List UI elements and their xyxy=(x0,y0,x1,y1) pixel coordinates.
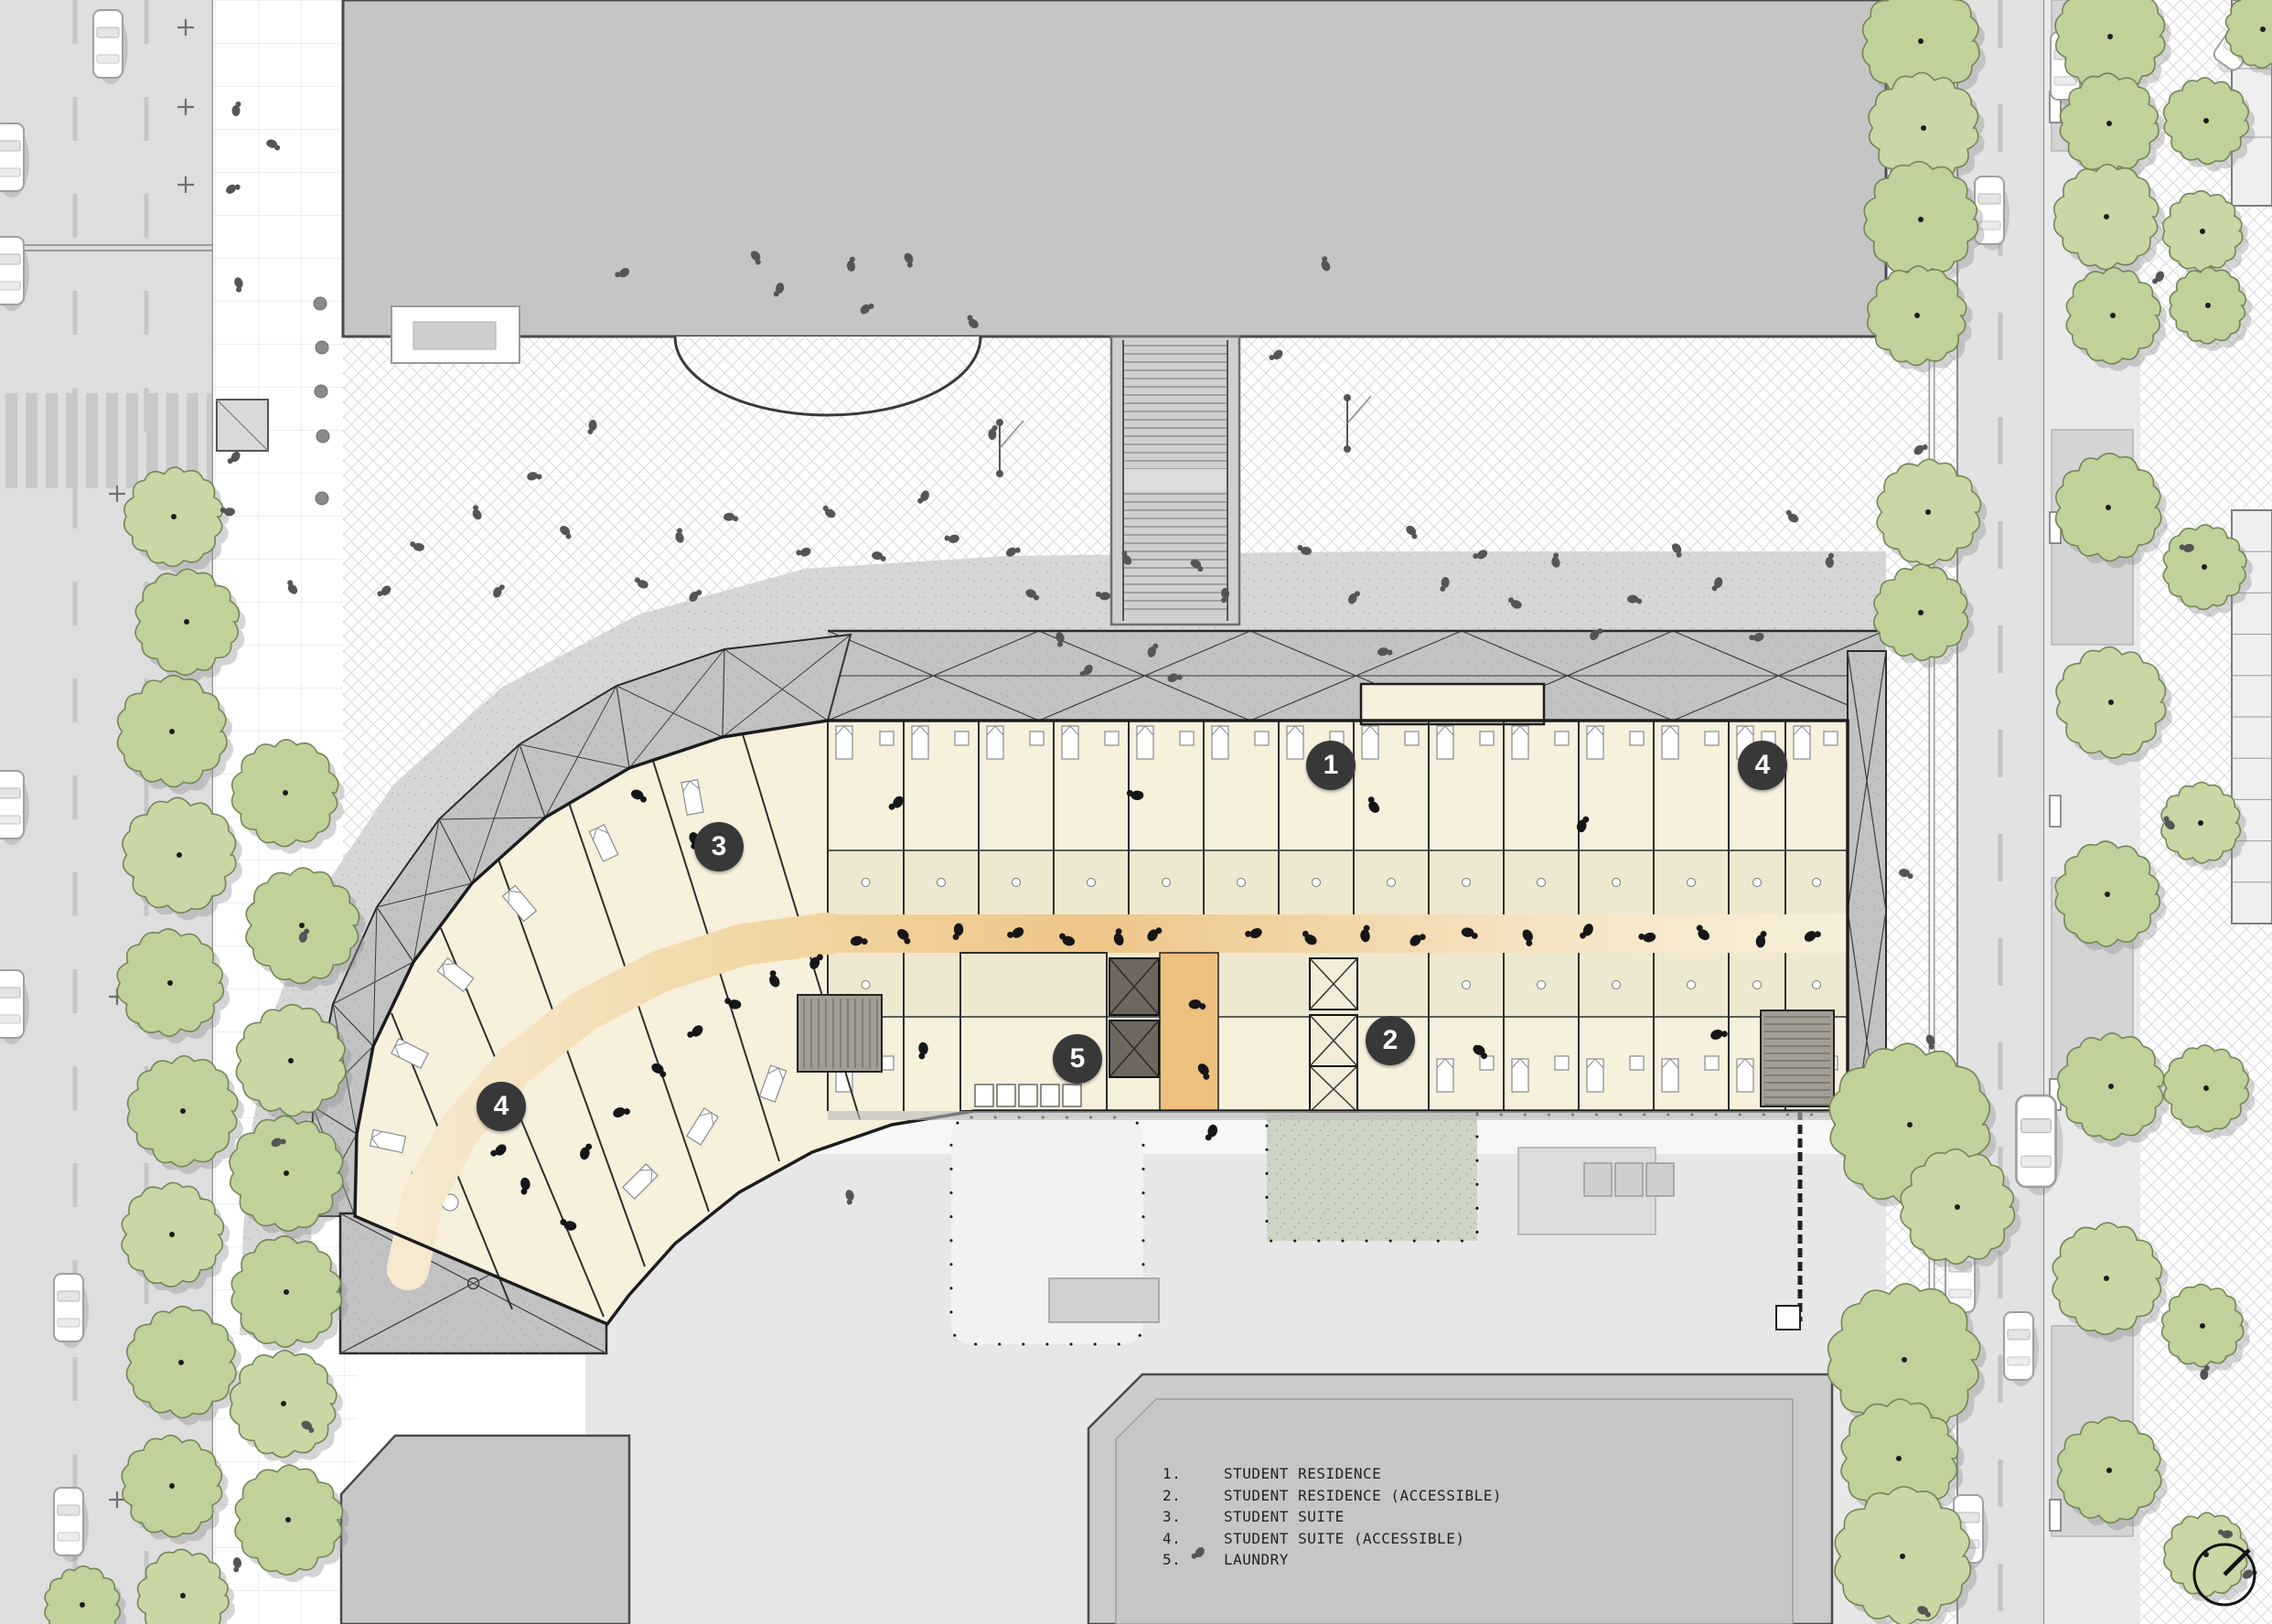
legend: 1.STUDENT RESIDENCE 2.STUDENT RESIDENCE … xyxy=(1163,1463,1502,1571)
legend-item-number: 4. xyxy=(1163,1528,1224,1550)
car-icon xyxy=(54,1274,89,1348)
car-icon xyxy=(2016,1095,2063,1195)
unit-marker: 2 xyxy=(1366,1016,1415,1065)
unit-marker: 1 xyxy=(1306,741,1356,790)
car-icon xyxy=(2004,1312,2039,1386)
legend-item-number: 2. xyxy=(1163,1485,1224,1507)
site-plan-canvas: 1.STUDENT RESIDENCE 2.STUDENT RESIDENCE … xyxy=(0,0,2272,1624)
car-icon xyxy=(54,1488,89,1562)
legend-item-number: 3. xyxy=(1163,1506,1224,1528)
legend-item-label: STUDENT RESIDENCE xyxy=(1224,1465,1381,1482)
site-plan-drawing xyxy=(0,0,2272,1624)
unit-marker: 5 xyxy=(1053,1034,1102,1084)
car-icon xyxy=(93,10,128,84)
legend-item-number: 5. xyxy=(1163,1549,1224,1571)
legend-item-label: LAUNDRY xyxy=(1224,1551,1289,1568)
legend-item: 3.STUDENT SUITE xyxy=(1163,1506,1502,1528)
north-arrow-icon xyxy=(2183,1533,2266,1616)
legend-item: 4.STUDENT SUITE (ACCESSIBLE) xyxy=(1163,1528,1502,1550)
legend-item: 5.LAUNDRY xyxy=(1163,1549,1502,1571)
legend-item-label: STUDENT RESIDENCE (ACCESSIBLE) xyxy=(1224,1487,1502,1504)
legend-item-label: STUDENT SUITE (ACCESSIBLE) xyxy=(1224,1530,1464,1547)
legend-item: 2.STUDENT RESIDENCE (ACCESSIBLE) xyxy=(1163,1485,1502,1507)
legend-item-number: 1. xyxy=(1163,1463,1224,1485)
legend-item-label: STUDENT SUITE xyxy=(1224,1508,1345,1525)
unit-marker: 4 xyxy=(1738,741,1787,790)
unit-marker: 4 xyxy=(477,1082,526,1131)
legend-item: 1.STUDENT RESIDENCE xyxy=(1163,1463,1502,1485)
unit-marker: 3 xyxy=(694,822,744,871)
